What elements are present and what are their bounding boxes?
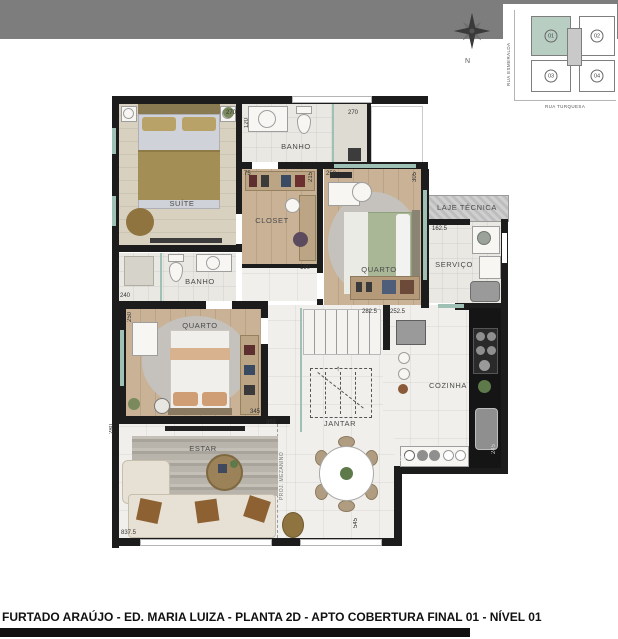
stairs-guardrail xyxy=(300,308,302,432)
dimension-label: 270 xyxy=(348,110,358,116)
key-plan-core xyxy=(567,28,582,66)
quarto-left-pillow-2 xyxy=(202,392,227,406)
compass-north-label: N xyxy=(465,58,470,65)
banho-left-shower xyxy=(124,256,154,286)
dimension-label: 305 xyxy=(412,172,418,182)
wall-step-vertical xyxy=(394,468,402,546)
quarto-left-wardrobe-item-3 xyxy=(244,385,255,395)
sheet-caption: FURTADO ARAÚJO - ED. MARIA LUIZA - PLANT… xyxy=(2,610,542,624)
cooktop-burner-5 xyxy=(455,450,466,461)
suite-pouf xyxy=(126,208,154,236)
stove-burner-5 xyxy=(479,360,490,371)
dimension-label: 130 xyxy=(396,457,406,463)
window-estar-bottom xyxy=(140,539,272,546)
stove-burner-3 xyxy=(476,346,485,355)
dimension-label: 250 xyxy=(127,312,133,322)
door-suite xyxy=(236,214,242,244)
jantar-chair-4 xyxy=(338,500,355,512)
dimension-label: 355 xyxy=(266,420,276,426)
servico-washer xyxy=(479,256,501,279)
window-suite-left-2 xyxy=(112,196,116,226)
banho-left-toilet-tank xyxy=(168,254,184,262)
suite-bed-headboard xyxy=(138,104,220,114)
room-label-suite: SUÍTE xyxy=(169,199,194,208)
door-banho-suite xyxy=(252,162,278,169)
banho-suite-toilet-tank xyxy=(296,106,312,114)
estar-cushion-2 xyxy=(195,499,220,524)
stairs-projection-dashed xyxy=(310,368,372,418)
cozinha-fixture-3 xyxy=(398,384,408,394)
cooktop-burner-2 xyxy=(417,450,428,461)
dimension-label: 545 xyxy=(353,518,359,528)
cozinha-plant xyxy=(478,380,491,393)
cozinha-fixture-2 xyxy=(398,368,410,380)
room-label-banho-left: BANHO xyxy=(185,277,215,286)
door-servico-cozinha-glass xyxy=(438,304,464,308)
wall-estar-top xyxy=(112,416,290,424)
closet-shelf-right xyxy=(299,195,316,261)
quarto-right-side-table xyxy=(352,182,372,202)
jantar-stool xyxy=(282,512,304,538)
cooktop-burner-3 xyxy=(429,450,440,461)
quarto-left-headboard xyxy=(168,408,232,415)
wall-servico-top xyxy=(428,219,470,225)
quarto-left-pillow-1 xyxy=(173,392,198,406)
quarto-right-clothes-2 xyxy=(400,280,414,294)
quarto-right-shoes-1 xyxy=(356,282,362,292)
closet-item-2 xyxy=(261,175,269,187)
quarto-left-desk xyxy=(132,322,158,356)
quarto-left-bed-stripe xyxy=(170,348,230,360)
quarto-left-basket xyxy=(154,398,170,414)
estar-tv xyxy=(165,426,245,431)
room-label-quarto-right: QUARTO xyxy=(361,265,396,274)
room-label-jantar: JANTAR xyxy=(324,419,356,428)
key-plan-unit-03: 03 xyxy=(531,60,571,92)
compass-rose-icon: N xyxy=(452,6,492,72)
quarto-left-wardrobe-item-2 xyxy=(244,365,255,375)
dimension-label: 245 xyxy=(491,444,497,454)
room-label-servico: SERVIÇO xyxy=(435,260,473,269)
door-banho-left xyxy=(206,301,232,309)
footer-bar xyxy=(0,628,470,637)
key-plan-unit-04: 04 xyxy=(579,60,615,92)
dimension-label: 837.5 xyxy=(121,530,136,536)
room-label-closet: CLOSET xyxy=(255,216,289,225)
jantar-centerpiece-plant xyxy=(340,467,353,480)
suite-pillow-left xyxy=(142,117,176,131)
stove-burner-2 xyxy=(487,332,496,341)
banho-suite-basin xyxy=(258,110,276,128)
key-plan: RUA ESMERALDA RUA TURQUESA 01 02 03 04 xyxy=(503,4,617,114)
door-quarto-right xyxy=(317,273,323,299)
suite-lamp-left xyxy=(123,108,134,119)
key-plan-unit-01: 01 xyxy=(531,16,571,56)
window-quarto-left-side xyxy=(120,330,124,386)
dimension-label: 280 xyxy=(109,424,115,434)
room-label-estar: ESTAR xyxy=(189,444,216,453)
closet-item-3 xyxy=(281,175,291,187)
key-plan-bottom-line xyxy=(514,100,616,101)
banho-suite-shower-drain xyxy=(348,148,361,161)
room-label-cozinha: COZINHA xyxy=(429,381,467,390)
quarto-right-shoes-2 xyxy=(366,282,372,292)
dimension-label: 162.5 xyxy=(432,226,447,232)
dimension-label: 75 xyxy=(244,171,251,177)
banho-left-shower-glass xyxy=(160,253,162,301)
dimension-label: 250 xyxy=(326,171,336,177)
room-label-banho-suite: BANHO xyxy=(281,142,311,151)
cozinha-fixture-1 xyxy=(398,352,410,364)
key-plan-unit-02: 02 xyxy=(579,16,615,56)
suite-tv-console xyxy=(150,238,222,243)
estar-table-plant xyxy=(230,460,238,468)
quarto-right-clothes-1 xyxy=(382,280,396,294)
estar-table-decor xyxy=(218,464,227,473)
wall-banho-left-bottom xyxy=(112,301,268,309)
window-suite-left-1 xyxy=(112,128,116,154)
dimension-label: 345 xyxy=(250,409,260,415)
floor-corridor xyxy=(242,268,317,301)
stairs-up-arrow: ↑ xyxy=(336,364,340,373)
quarto-left-wardrobe-item-1 xyxy=(244,345,255,355)
room-label-quarto-left: QUARTO xyxy=(182,321,217,330)
dimension-label: 252.5 xyxy=(390,309,405,315)
stove-burner-1 xyxy=(476,332,485,341)
room-label-laje-tecnica: LAJE TÉCNICA xyxy=(437,203,497,212)
door-quarto-left xyxy=(261,318,268,344)
suite-pillow-right xyxy=(182,117,216,131)
window-quarto-right-top xyxy=(334,164,416,168)
window-quarto-right-side xyxy=(423,190,427,280)
servico-sink xyxy=(477,231,491,245)
wall-suite-bottom xyxy=(112,245,242,252)
stairs-projection-line-3 xyxy=(355,372,356,414)
closet-item-4 xyxy=(295,175,305,187)
wall-top xyxy=(112,96,428,104)
quarto-left-plant xyxy=(128,398,140,410)
stairs-projection-line-2 xyxy=(340,372,341,414)
key-plan-street-left: RUA ESMERALDA xyxy=(506,26,511,86)
dimension-label: 240 xyxy=(120,293,130,299)
dimension-label: 282.5 xyxy=(362,309,377,315)
wall-shower-right xyxy=(367,104,371,164)
closet-plant xyxy=(293,232,308,247)
closet-ottoman xyxy=(285,198,300,213)
window-jantar-bottom xyxy=(300,539,382,546)
key-plan-left-line xyxy=(514,10,515,100)
staircase-upper-flight xyxy=(303,309,381,355)
mezzanine-projection-label: PROJ. MEZANINO xyxy=(279,430,285,500)
banho-left-basin xyxy=(206,256,220,270)
stove-burner-4 xyxy=(487,346,496,355)
wall-stairs-right xyxy=(383,305,390,350)
cooktop-burner-4 xyxy=(443,450,454,461)
dimension-label: 270 xyxy=(226,110,236,116)
door-servico-right xyxy=(502,233,507,263)
banho-suite-shower-glass xyxy=(332,104,334,162)
dimension-label: 120 xyxy=(244,118,250,128)
floor-ledge xyxy=(371,106,423,164)
key-plan-street-bottom: RUA TURQUESA xyxy=(545,104,585,109)
estar-cushion-1 xyxy=(136,498,162,524)
servico-boiler xyxy=(470,281,500,302)
suite-bed-blanket xyxy=(138,150,220,200)
dimension-label: 215 xyxy=(308,172,314,182)
window-banho-top xyxy=(292,96,372,103)
dimension-label: 190 xyxy=(300,265,310,271)
wall-left xyxy=(112,96,119,548)
floor-plan-sheet: N RUA ESMERALDA RUA TURQUESA 01 02 03 04 xyxy=(0,0,618,639)
cozinha-fridge xyxy=(396,320,426,345)
